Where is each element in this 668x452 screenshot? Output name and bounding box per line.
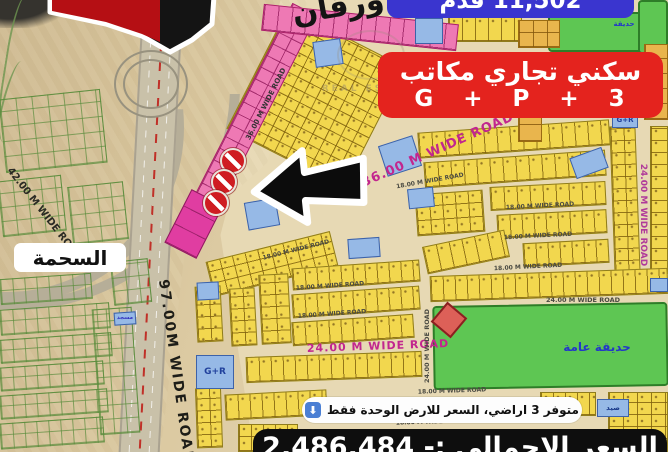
plot-block-blue — [197, 281, 220, 300]
road-label: 97.00M WIDE ROAD — [155, 279, 197, 452]
road-label: 18.00 M WIDE ROAD — [494, 262, 563, 273]
down-arrow-icon: ⬇ — [305, 402, 321, 418]
place-label: مسجد — [117, 315, 133, 321]
area-size-banner: 11,502 قدم — [387, 0, 634, 18]
place-label: حديقة عامة — [563, 340, 631, 354]
plot-block-outline — [0, 360, 105, 391]
place-label: صيد — [606, 404, 620, 412]
plot-block-blue — [407, 187, 435, 210]
plot-block-yellow — [258, 273, 292, 344]
area-size-text: 11,502 قدم — [440, 0, 582, 14]
plot-block-outline — [0, 89, 108, 173]
plot-block-yellow — [650, 126, 668, 274]
plot-block-blue — [347, 237, 380, 259]
road-label: 24.00 M WIDE ROAD — [546, 296, 620, 304]
plot-block-blue — [650, 278, 668, 292]
plot-block-green — [432, 302, 668, 390]
plot-marker-icon — [203, 190, 229, 216]
plot-block-yellow — [609, 126, 640, 275]
district-name: السحمة — [33, 246, 108, 270]
plot-block-yellow — [448, 16, 522, 42]
availability-text: متوفر 3 اراضي، السعر للارض الوحدة فقط — [327, 403, 579, 417]
plot-block-yellow — [246, 351, 423, 383]
plot-block-outline — [0, 416, 105, 449]
zoning-banner: سكني تجاري مكاتب G + P + 3 — [378, 52, 663, 118]
plot-block-outline — [67, 181, 129, 245]
total-price-banner: السعر الاجمالي :- 2,486,484 — [253, 429, 667, 452]
zoning-text: سكني تجاري مكاتب — [400, 58, 641, 87]
listing-map-image: ورقان36.00 M WIDE ROAD36.00 M WIDE ROAD2… — [0, 0, 668, 452]
plot-block-yellow — [195, 388, 223, 449]
road-label: 24.00 M WIDE ROAD — [423, 309, 431, 383]
plot-block-outline — [0, 388, 109, 419]
place-label: حديقة — [614, 20, 635, 28]
place-label: G+R — [204, 367, 226, 377]
plot-block-yellow — [229, 287, 258, 346]
zoning-floors-text: G + P + 3 — [414, 87, 626, 112]
district-label: السحمة — [14, 243, 126, 272]
plot-block-orange — [518, 20, 560, 48]
road-label: 24.00 M WIDE ROAD — [638, 164, 648, 267]
availability-pill: متوفر 3 اراضي، السعر للارض الوحدة فقط ⬇ — [302, 397, 582, 423]
total-price-text: السعر الاجمالي :- 2,486,484 — [262, 432, 658, 452]
plot-block-outline — [92, 307, 141, 435]
plot-block-outline — [0, 273, 93, 305]
location-arrow-icon — [244, 140, 376, 235]
road-label: 18.00 M WIDE ROAD — [418, 386, 487, 395]
agency-logo — [42, 0, 222, 60]
